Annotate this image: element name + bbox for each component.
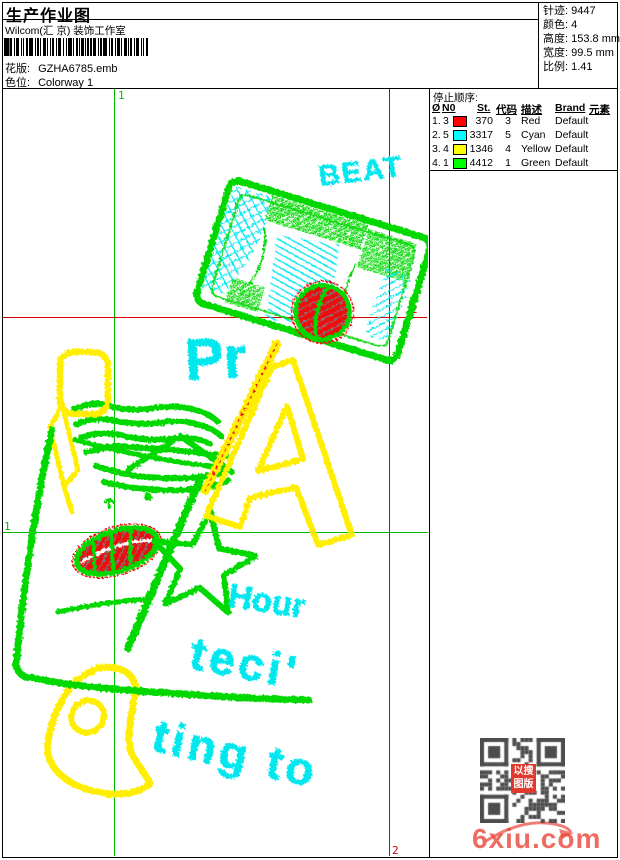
watermark-logo: 6xiu.com xyxy=(472,823,601,855)
stitch-text-ting-to: ting to xyxy=(148,709,324,798)
stamp-line-2: 图版 xyxy=(511,778,536,791)
end-marker-bottom: 2 xyxy=(392,844,399,857)
production-worksheet: 生产作业图 Wilcom(汇 京) 装饰工作室 花版:GZHA6785.emb … xyxy=(0,0,620,860)
start-marker-left: 1 xyxy=(4,520,11,533)
lips-motif xyxy=(66,514,168,588)
start-marker-top: 1 xyxy=(118,89,125,102)
stamp-line-1: 以搜 xyxy=(511,765,536,778)
embroidery-art: BEAT Pr Hour teci' ting to xyxy=(16,151,432,798)
stitch-text-beat: BEAT xyxy=(317,151,405,193)
watermark-stamp: 以搜 图版 xyxy=(511,764,536,793)
stitch-text-hour: Hour xyxy=(226,576,308,625)
design-canvas: 1 1 2 2 xyxy=(0,0,620,860)
stitch-text-teci: teci' xyxy=(186,627,304,699)
stitch-text-pr: Pr xyxy=(183,325,248,393)
